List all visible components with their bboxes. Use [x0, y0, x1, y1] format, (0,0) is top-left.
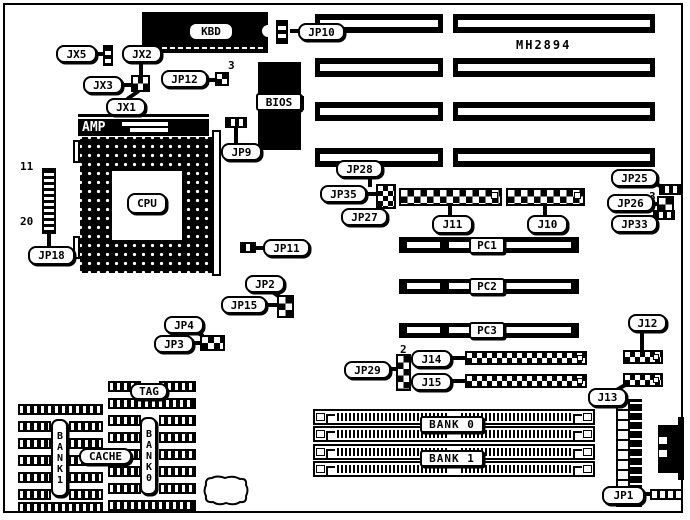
j15-header	[465, 374, 587, 388]
jp18-pin11: 11	[20, 160, 33, 173]
part-number: MH2894	[516, 38, 571, 52]
bank0-label: BANK 0	[420, 416, 484, 433]
blob-path	[205, 477, 248, 505]
j13-header	[623, 373, 663, 387]
jp15-label: JP15	[221, 296, 267, 314]
jp18-connector	[42, 168, 56, 234]
jp25-connector	[659, 184, 681, 195]
cpu-label: CPU	[127, 193, 167, 214]
pc3-label: PC3	[469, 322, 505, 339]
jp3-label: JP3	[154, 335, 194, 353]
jp1-label: JP1	[602, 486, 645, 505]
jp33-label: JP33	[611, 215, 658, 233]
jp4-label: JP4	[164, 316, 204, 334]
slot-segment	[505, 242, 571, 248]
bank1-label: BANK 1	[420, 450, 484, 467]
simm-clip	[316, 430, 325, 438]
simm-clip	[316, 413, 325, 421]
cache-chip	[18, 472, 51, 483]
callout-tail	[234, 128, 238, 144]
cache-chip	[18, 421, 51, 432]
jp10-connector	[276, 20, 288, 44]
slot-segment	[505, 283, 571, 289]
simm-clip	[316, 448, 325, 456]
pc1-label: PC1	[469, 237, 505, 254]
din-notch	[659, 450, 667, 457]
slot-segment	[505, 327, 571, 333]
simm-clip	[573, 414, 582, 423]
jx5-label: JX5	[56, 45, 97, 63]
simm-clip	[326, 466, 335, 475]
simm-clip	[326, 431, 335, 440]
jp18-label: JP18	[28, 246, 75, 265]
cache-chip-row	[108, 500, 196, 511]
cache-chip	[69, 421, 103, 432]
cache-chip	[18, 438, 51, 449]
kbd-label: KBD	[188, 22, 234, 41]
jp26-label: JP26	[607, 194, 654, 212]
cache-label: CACHE	[79, 448, 132, 465]
cache-chip	[69, 489, 103, 500]
cache-chip	[159, 415, 196, 426]
callout-tail	[640, 331, 644, 351]
slot-segment	[407, 327, 440, 333]
j10-header	[506, 188, 585, 206]
simm-clip	[583, 448, 592, 456]
pin1-marker	[577, 378, 583, 384]
cache-chip	[108, 432, 141, 443]
slot-segment	[407, 283, 440, 289]
pin1-marker	[491, 192, 498, 199]
simm-clip	[326, 414, 335, 423]
cache-chip	[108, 483, 141, 494]
isa-slot-2-right	[453, 58, 655, 77]
simm-clip	[583, 465, 592, 473]
socket-tab	[73, 140, 80, 163]
cache-chip	[159, 466, 196, 477]
jp35-label: JP35	[320, 185, 367, 203]
simm-clip	[316, 465, 325, 473]
j14-label: J14	[411, 350, 452, 368]
jp2-jp15-connector	[277, 295, 294, 318]
isa-slot-3-left	[315, 102, 443, 121]
jx1-jx2-jx3-connector	[131, 75, 150, 92]
isa-slot-3-right	[453, 102, 655, 121]
amp-pad	[130, 128, 168, 132]
jp10-label: JP10	[298, 23, 345, 41]
j11-header	[399, 188, 502, 206]
simm-clip	[583, 430, 592, 438]
j12-label: J12	[628, 314, 667, 332]
jp29-pin2: 2	[400, 343, 407, 356]
jp29-label: JP29	[344, 361, 391, 379]
cache-chip	[18, 489, 51, 500]
cache-chip	[159, 432, 196, 443]
jp12-connector	[215, 72, 229, 86]
blob-outline	[202, 474, 250, 508]
kbd-pin-row	[146, 47, 264, 49]
jp25-label: JP25	[611, 169, 658, 187]
j15-label: J15	[411, 373, 452, 391]
amp-bar: AMP	[78, 119, 209, 136]
simm-clip	[326, 449, 335, 458]
j14-header	[465, 351, 587, 365]
amp-pad	[122, 122, 168, 126]
simm-clip	[573, 431, 582, 440]
isa-slot-4-right	[453, 148, 655, 167]
callout-tail	[368, 177, 372, 187]
cache-chip	[108, 466, 141, 477]
j13-label: J13	[588, 388, 627, 407]
jp11-connector	[240, 242, 256, 253]
j12-header	[623, 350, 663, 364]
pin1-marker	[653, 377, 659, 383]
kbd-notch	[262, 25, 274, 37]
pin1-marker	[653, 354, 659, 360]
slot-segment	[449, 242, 469, 248]
isa-slot-2-left	[315, 58, 443, 77]
jp18-pin20: 20	[20, 215, 33, 228]
slot-segment	[449, 283, 469, 289]
simm-clip	[573, 466, 582, 475]
cache-chip-row	[18, 502, 103, 513]
callout-tail	[139, 62, 143, 75]
amp-top-line	[78, 114, 209, 117]
j10-label: J10	[527, 215, 568, 234]
slot-segment	[407, 242, 440, 248]
pin1-marker	[577, 355, 583, 361]
simm-clip	[573, 449, 582, 458]
cache-chip	[108, 415, 141, 426]
simm-clip	[583, 413, 592, 421]
tag-label: TAG	[130, 383, 168, 400]
jp12-pin3: 3	[228, 59, 235, 72]
cache-chip	[159, 483, 196, 494]
jp12-label: JP12	[161, 70, 208, 88]
isa-slot-1-right	[453, 14, 655, 33]
cache-chip-row	[18, 404, 103, 415]
jx2-label: JX2	[122, 45, 162, 63]
slot-segment	[449, 327, 469, 333]
pin1-marker	[574, 192, 581, 199]
bank1-column-label: BANK1	[51, 419, 68, 497]
jx5-connector	[103, 45, 113, 66]
callout-tail	[47, 233, 51, 247]
jp2-label: JP2	[245, 275, 285, 293]
socket-lever	[212, 130, 221, 276]
pc2-label: PC2	[469, 278, 505, 295]
jp27-label: JP27	[341, 208, 388, 226]
j11-label: J11	[432, 215, 473, 234]
jp28-label: JP28	[336, 160, 383, 178]
jp11-label: JP11	[263, 239, 310, 257]
cache-chip	[18, 455, 51, 466]
amp-label: AMP	[82, 120, 105, 135]
cache-chip	[69, 472, 103, 483]
jp3-jp4-connector	[200, 335, 225, 351]
jp1-connector	[650, 489, 683, 500]
jp9-connector	[225, 117, 247, 128]
din-notch	[659, 437, 667, 444]
motherboard-diagram: { "part_number": "MH2894", "chips": { "k…	[0, 0, 690, 520]
jx1-label: JX1	[106, 98, 146, 116]
jx3-label: JX3	[83, 76, 123, 94]
din-keyboard-flange	[678, 417, 684, 480]
bios-label: BIOS	[256, 93, 302, 111]
jp9-label: JP9	[221, 143, 262, 161]
cache-chip	[159, 449, 196, 460]
bank0-column-label: BANK0	[140, 417, 157, 495]
jp29-block	[396, 354, 411, 391]
